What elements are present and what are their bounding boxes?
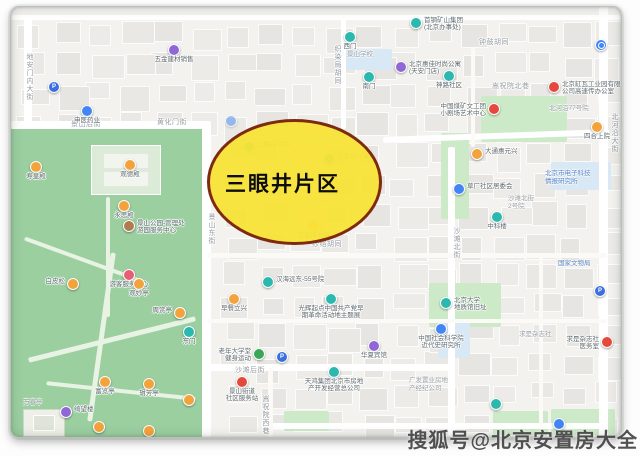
- building-block: [531, 201, 558, 226]
- lane: [471, 47, 475, 147]
- map-pin[interactable]: 观德殿: [124, 159, 136, 171]
- building-block: [295, 54, 321, 77]
- poi-pin-icon[interactable]: [183, 394, 195, 406]
- poi-pin-icon[interactable]: [81, 105, 93, 117]
- poi-label: 四合上院: [584, 133, 610, 140]
- building-block: [126, 54, 157, 74]
- map-pin[interactable]: 求是杂志社 医务室: [601, 336, 613, 348]
- map-pin[interactable]: 东门: [183, 326, 195, 338]
- building-block: [328, 328, 361, 353]
- building-block: [459, 263, 482, 284]
- street-label: 景山东街: [206, 213, 216, 245]
- street-label: 沙滩后街: [235, 365, 265, 375]
- map-pin[interactable]: 北京大学 地质馆旧址: [440, 297, 452, 309]
- parking-icon[interactable]: P: [594, 285, 606, 297]
- poi-pin-icon[interactable]: [440, 297, 452, 309]
- street-label: 钟鼓胡同: [479, 37, 509, 47]
- building-block: [228, 54, 257, 71]
- street-label: 织染局胡同: [332, 45, 342, 85]
- poi-pin-icon[interactable]: [99, 376, 111, 388]
- poi-label: 景山公园-管理处 游园服务中心: [137, 220, 185, 235]
- sanyanjing-area-label: 三眼井片区: [225, 168, 340, 198]
- poi-label: 富览亭: [95, 388, 115, 395]
- building-block: [355, 26, 382, 48]
- map-pin[interactable]: 老年大学堂 健身运动: [253, 348, 265, 360]
- poi-label: 南门: [363, 83, 376, 90]
- map-pin[interactable]: [225, 115, 237, 127]
- park-path: [106, 197, 110, 317]
- poi-label: 景山街道 社区服务站: [226, 388, 259, 403]
- poi-pin-icon[interactable]: [363, 71, 375, 83]
- building-block: [398, 207, 429, 230]
- poi-label: 申医药业: [74, 117, 100, 124]
- map-pin[interactable]: [93, 421, 105, 433]
- building-block: [495, 52, 527, 73]
- poi-pin-icon[interactable]: [262, 276, 274, 288]
- building-block: [122, 21, 155, 44]
- building-block: [528, 26, 556, 43]
- poi-label: 草厂社区居委会: [467, 183, 513, 190]
- poi-label: 观德殿: [120, 171, 140, 178]
- parking-icon[interactable]: P: [48, 81, 60, 93]
- building-block: [254, 88, 286, 107]
- building-block: [255, 53, 281, 71]
- poi-label: 白皮松: [46, 278, 66, 285]
- building-block: [194, 82, 215, 102]
- poi-label: 周赏亭: [153, 307, 173, 314]
- poi-pin-icon[interactable]: [410, 17, 422, 29]
- building-block: [563, 388, 586, 406]
- building-block: [154, 21, 184, 42]
- poi-pin-icon[interactable]: [183, 326, 195, 338]
- map-pin[interactable]: 大通惠元兴: [471, 148, 483, 160]
- poi-label: 北京大学 地质馆旧址: [454, 297, 487, 312]
- poi-label: 早餐立兴: [221, 305, 247, 312]
- poi-pin-icon[interactable]: [124, 159, 136, 171]
- map-pin[interactable]: 申医药业: [81, 105, 93, 117]
- poi-label: 辑芳亭: [139, 390, 159, 397]
- street-label: 黄化门街: [157, 117, 187, 127]
- poi-pin-icon[interactable]: [471, 148, 483, 160]
- building-block: [227, 27, 250, 48]
- map-pin[interactable]: [490, 398, 502, 410]
- building-block: [389, 179, 413, 197]
- building-block: [193, 29, 222, 51]
- street-label: 地安门内大街: [24, 53, 34, 101]
- building-block: [395, 28, 419, 48]
- area-label: 景山学校: [347, 51, 373, 59]
- map-pin[interactable]: 白皮松: [67, 278, 79, 290]
- map-pin[interactable]: 景山街道 社区服务站: [236, 376, 248, 388]
- poi-pin-icon[interactable]: [488, 103, 500, 115]
- building-block: [293, 324, 327, 350]
- building-block: [394, 237, 428, 262]
- map-pin[interactable]: P: [48, 81, 60, 93]
- map-pin[interactable]: 景山公园-管理处 游园服务中心: [123, 220, 135, 232]
- poi-pin-icon[interactable]: [453, 183, 465, 195]
- building-block: [263, 298, 285, 315]
- building-block: [563, 22, 591, 48]
- street-label: 北河沿大街: [609, 113, 619, 153]
- area-label: 求是杂志社: [519, 331, 552, 339]
- area-label: 广发置业房地 产经纪公司: [409, 377, 448, 393]
- building-block: [292, 27, 315, 46]
- wanchunting-inner: [33, 415, 55, 431]
- poi-pin-icon[interactable]: [123, 220, 135, 232]
- poi-pin-icon[interactable]: [344, 31, 356, 43]
- watermark: 搜狐号@北京安置房大全: [407, 424, 638, 453]
- poi-pin-icon[interactable]: [490, 398, 502, 410]
- poi-label: 永思殿: [114, 212, 134, 219]
- sanyanjing-area-highlight: 三眼井片区: [207, 119, 382, 245]
- building-block: [393, 293, 426, 309]
- poi-label: 老年大学堂 健身运动: [219, 348, 252, 363]
- street-top-horizontal: [11, 15, 621, 20]
- poi-pin-icon[interactable]: [548, 81, 560, 93]
- building-block: [120, 86, 150, 112]
- map-pin[interactable]: P: [594, 285, 606, 297]
- poi-label: 光辉起点中国共产党早 期革命活动地主题展: [299, 305, 364, 320]
- building-block: [355, 233, 377, 250]
- poi-label: 汉海远东-55号院: [276, 276, 324, 283]
- poi-pin-icon[interactable]: [328, 366, 340, 378]
- building-block: [223, 261, 245, 285]
- map-pin[interactable]: 中国煤矿文工团 小剧场艺术中心: [488, 103, 500, 115]
- poi-pin-icon[interactable]: [236, 376, 248, 388]
- street-label: 嵩祝院北巷: [492, 81, 530, 91]
- poi-label: 东门: [183, 338, 196, 345]
- poi-pin-icon[interactable]: [133, 278, 145, 290]
- building-block: [464, 385, 489, 403]
- map-pin[interactable]: 首钢矿山集团 (北京办事处): [410, 17, 422, 29]
- map-pin[interactable]: 草厂社区居委会: [453, 183, 465, 195]
- map-pin[interactable]: 天鸿集团北京市房地 产开发经营总公司: [328, 366, 340, 378]
- map-pin[interactable]: 神路社区: [443, 70, 455, 82]
- building-block: [566, 204, 587, 229]
- map-pin[interactable]: [143, 425, 155, 437]
- poi-label: 西门: [344, 43, 357, 50]
- poi-pin-icon[interactable]: [67, 278, 79, 290]
- building-block: [159, 85, 187, 102]
- street-label: 嵩祝院西巷: [260, 395, 270, 435]
- parking-icon[interactable]: P: [276, 351, 288, 363]
- building-block: [89, 25, 112, 46]
- building-block: [292, 84, 312, 105]
- poi-pin-icon[interactable]: [225, 115, 237, 127]
- area-label: 北京市电子科技 情报研究所: [545, 170, 591, 186]
- street-beiheyan: [599, 7, 608, 437]
- poi-pin-icon[interactable]: [93, 421, 105, 433]
- poi-pin-icon[interactable]: [435, 323, 447, 335]
- building-block: [396, 142, 429, 168]
- building-block: [565, 58, 594, 79]
- poi-label: 华夏宾馆: [361, 352, 387, 359]
- poi-pin-icon[interactable]: [143, 378, 155, 390]
- poi-pin-icon[interactable]: [395, 61, 407, 73]
- building-block: [92, 55, 126, 80]
- map-canvas[interactable]: 景山后街黄化门街地安门内大街景山东街织染局胡同钟鼓胡同嵩祝院北巷沙滩北街纱络胡同…: [11, 7, 621, 437]
- poi-pin-icon[interactable]: [143, 425, 155, 437]
- building-block: [562, 295, 584, 318]
- building-block: [526, 143, 551, 164]
- building-block: [225, 81, 245, 100]
- street-label: 沙滩北街: [451, 227, 461, 259]
- map-pin[interactable]: 早餐立兴: [228, 293, 240, 305]
- building-block: [397, 325, 419, 347]
- poi-label: 北京缸瓦工业园有限 公司高速传办公室: [562, 81, 621, 96]
- building-block: [258, 24, 283, 45]
- building-block: [499, 297, 524, 314]
- station-icon[interactable]: [595, 39, 607, 51]
- building-block: [357, 265, 382, 288]
- area-label: 沙滩北街 2号院: [508, 195, 534, 211]
- poi-pin-icon[interactable]: [591, 121, 603, 133]
- map-pin[interactable]: 富览亭: [99, 376, 111, 388]
- map-pin[interactable]: 周赏亭: [174, 307, 186, 319]
- map-pin[interactable]: 汉海远东-55号院: [262, 276, 274, 288]
- map-pin[interactable]: 寿皇殿: [30, 161, 42, 173]
- poi-label: 大通惠元兴: [485, 148, 518, 155]
- poi-label: 求是杂志社 医务室: [567, 336, 600, 351]
- building-block: [56, 22, 80, 43]
- poi-pin-icon[interactable]: [325, 293, 337, 305]
- map-pin[interactable]: 五金建材销售: [168, 44, 180, 56]
- poi-pin-icon[interactable]: [174, 307, 186, 319]
- poi-label: 天鸿集团北京市房地 产开发经营总公司: [305, 378, 364, 393]
- poi-pin-icon[interactable]: [491, 211, 503, 223]
- map-pin[interactable]: 南门: [363, 71, 375, 83]
- building-block: [491, 357, 517, 376]
- building-block: [258, 323, 286, 347]
- poi-label: 观妙亭: [129, 290, 149, 297]
- map-pin[interactable]: [595, 39, 607, 51]
- building-block: [323, 268, 357, 286]
- map-pin[interactable]: 北京缸瓦工业园有限 公司高速传办公室: [548, 81, 560, 93]
- building-block: [191, 55, 218, 81]
- building-block: [356, 112, 389, 136]
- lane: [207, 319, 607, 323]
- building-block: [564, 356, 594, 375]
- poi-label: 神路社区: [436, 82, 462, 89]
- map-pin[interactable]: 中科楼: [491, 211, 503, 223]
- building-block: [499, 325, 520, 346]
- map-pin[interactable]: 西门: [344, 31, 356, 43]
- green-strip-zone: [441, 133, 469, 219]
- map-pin[interactable]: 华夏宾馆: [368, 340, 380, 352]
- map-pin[interactable]: [183, 394, 195, 406]
- map-pin[interactable]: 辑芳亭: [143, 378, 155, 390]
- poi-pin-icon[interactable]: [368, 340, 380, 352]
- poi-label: 中国煤矿文工团 小剧场艺术中心: [441, 103, 487, 118]
- poi-pin-icon[interactable]: [118, 200, 130, 212]
- building-block: [390, 84, 416, 108]
- poi-label: 中国社会科学院 近代史研究所: [418, 335, 464, 350]
- poi-pin-icon[interactable]: [30, 161, 42, 173]
- map-pin[interactable]: 永思殿: [118, 200, 130, 212]
- area-label: 万春亭: [23, 399, 43, 407]
- map-pin[interactable]: 北京惠佳时尚公寓 (天安门店): [395, 61, 407, 73]
- lane: [207, 253, 607, 258]
- map-pin[interactable]: 中国社会科学院 近代史研究所: [435, 323, 447, 335]
- poi-pin-icon[interactable]: [228, 293, 240, 305]
- poi-pin-icon[interactable]: [253, 348, 265, 360]
- area-label: 国家文物局: [558, 260, 591, 268]
- building-block: [399, 264, 430, 288]
- building-block: [56, 52, 81, 75]
- watermark-text: 搜狐号@北京安置房大全: [407, 430, 638, 452]
- poi-pin-icon[interactable]: [168, 44, 180, 56]
- area-label: 北河沿77号院: [549, 105, 589, 113]
- poi-pin-icon[interactable]: [60, 406, 72, 418]
- map-pin[interactable]: P: [276, 351, 288, 363]
- map-pin[interactable]: 观妙亭: [133, 278, 145, 290]
- poi-label: 中科楼: [487, 223, 507, 230]
- lane: [539, 257, 543, 425]
- building-block: [564, 143, 593, 161]
- poi-label: 首钢矿山集团 (北京办事处): [424, 17, 463, 32]
- map-pin[interactable]: 光辉起点中国共产党早 期革命活动地主题展: [325, 293, 337, 305]
- poi-pin-icon[interactable]: [601, 336, 613, 348]
- map-pin[interactable]: 四合上院: [591, 121, 603, 133]
- map-pin[interactable]: 绮望楼: [60, 406, 72, 418]
- poi-label: 绮望楼: [74, 406, 94, 413]
- poi-pin-icon[interactable]: [443, 70, 455, 82]
- building-block: [564, 268, 594, 289]
- building-block: [529, 52, 550, 72]
- map-photo-frame: 景山后街黄化门街地安门内大街景山东街织染局胡同钟鼓胡同嵩祝院北巷沙滩北街纱络胡同…: [10, 6, 622, 438]
- poi-label: 寿皇殿: [26, 173, 46, 180]
- building-block: [227, 321, 255, 340]
- poi-label: 五金建材销售: [155, 56, 194, 63]
- building-block: [229, 416, 258, 433]
